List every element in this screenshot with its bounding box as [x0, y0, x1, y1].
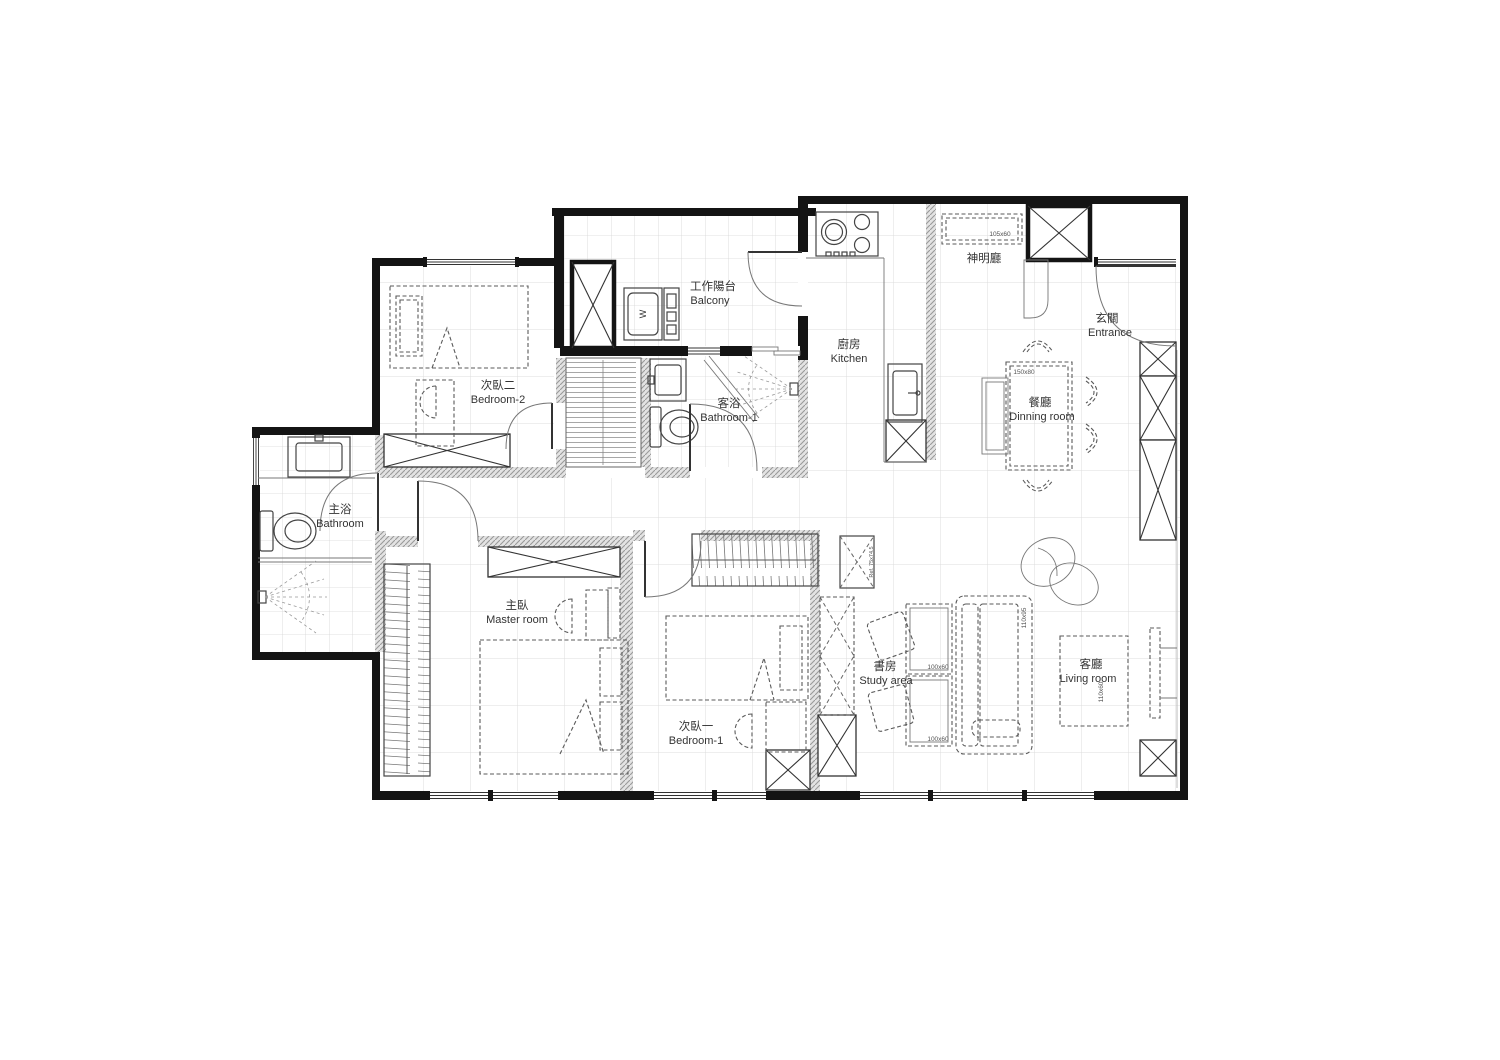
bathroom1-label-en: Bathroom-1 — [700, 412, 757, 424]
bedroom1-label-zh: 次臥一 — [679, 719, 714, 733]
wall — [926, 204, 936, 460]
balcony-label-zh: 工作陽台 — [690, 279, 736, 293]
balcony-label-en: Balcony — [690, 295, 730, 307]
hall-linen-closet — [566, 358, 641, 467]
master-bath-label-zh: 主浴 — [329, 503, 352, 516]
wall — [720, 346, 752, 356]
master-closet-top — [488, 547, 620, 577]
wall — [556, 358, 566, 403]
wall — [1180, 196, 1188, 800]
fridge-dim-label: Ref. 75x74.5 — [869, 546, 875, 577]
window-bottom-bedroom1 — [654, 790, 766, 801]
bedroom1-wardrobe — [692, 534, 818, 586]
wall — [798, 360, 808, 478]
wall — [380, 467, 556, 478]
kitchen-label-zh: 廚房 — [838, 337, 861, 351]
sofa-dim-label: 110x95 — [1021, 607, 1028, 628]
window-bathroom1 — [688, 346, 720, 356]
wall — [558, 791, 654, 800]
wall — [252, 485, 260, 652]
floor-plan-drawing: 工作陽台 Balcony 次臥二 Bedroom-2 廚房 Kitchen 客浴… — [0, 0, 1500, 1060]
master-wardrobe — [384, 564, 430, 776]
living-corner-cabinet — [1140, 740, 1176, 776]
dining-label-en: Dinning room — [1009, 411, 1074, 423]
bedroom2-wardrobe — [384, 434, 510, 467]
dining-label-zh: 餐廳 — [1029, 395, 1052, 409]
window-bottom-living — [860, 790, 1094, 801]
wall — [633, 530, 645, 541]
wall — [252, 652, 380, 660]
wall — [554, 208, 564, 348]
wall — [372, 258, 425, 266]
living-label-en: Living room — [1060, 673, 1117, 685]
study-cabinet — [818, 715, 856, 776]
wall — [552, 208, 816, 216]
floor-plan-canvas: 工作陽台 Balcony 次臥二 Bedroom-2 廚房 Kitchen 客浴… — [0, 0, 1500, 1060]
master-label-en: Master room — [486, 614, 548, 626]
altar-dim-label: 105x60 — [989, 231, 1011, 238]
wall — [798, 196, 1188, 204]
window-bedroom2-top — [423, 257, 519, 267]
wall — [252, 427, 260, 438]
kitchen-base-cabinet — [886, 420, 926, 462]
wall — [645, 467, 690, 478]
desk2-dim-label: 100x60 — [927, 736, 949, 743]
shrine-storage-cabinet — [1028, 206, 1090, 260]
entrance-shoe-cabinet — [1140, 342, 1176, 540]
living-label-zh: 客廳 — [1080, 657, 1103, 671]
wall — [556, 449, 566, 478]
wall — [252, 427, 376, 435]
entrance-label-en: Entrance — [1088, 327, 1132, 339]
bedroom1-label-en: Bedroom-1 — [669, 735, 723, 747]
wall — [478, 536, 633, 547]
wall — [766, 791, 860, 800]
washer-label: W — [638, 309, 648, 318]
wall — [372, 791, 430, 800]
entry-alcove-floor — [1090, 204, 1180, 260]
master-label-zh: 主臥 — [506, 599, 529, 612]
wall — [372, 266, 380, 435]
bedroom1-corner-cabinet — [766, 750, 810, 790]
wall — [380, 536, 418, 547]
wall — [1094, 791, 1188, 800]
dining-table-dim-label: 150x80 — [1013, 369, 1035, 376]
study-label-zh: 書房 — [874, 659, 897, 673]
shrine-label-zh: 神明廳 — [967, 251, 1002, 265]
tv-console-dim-label: 110x60 — [1098, 681, 1105, 702]
study-label-en: Study area — [859, 675, 913, 687]
window-bottom-master — [430, 790, 558, 801]
entrance-label-zh: 玄關 — [1096, 311, 1119, 325]
wall — [372, 652, 380, 800]
master-bath-floor — [260, 435, 372, 652]
desk1-dim-label: 100x60 — [927, 664, 949, 671]
master-bath-label-en: Bathroom — [316, 518, 364, 530]
wall — [798, 204, 808, 252]
pipe-shaft — [572, 262, 614, 348]
bedroom2-label-en: Bedroom-2 — [471, 394, 525, 406]
bedroom2-label-zh: 次臥二 — [481, 378, 516, 392]
kitchen-label-en: Kitchen — [831, 353, 868, 365]
balcony-sliding-door — [752, 346, 800, 356]
bathroom1-label-zh: 客浴 — [718, 396, 741, 410]
